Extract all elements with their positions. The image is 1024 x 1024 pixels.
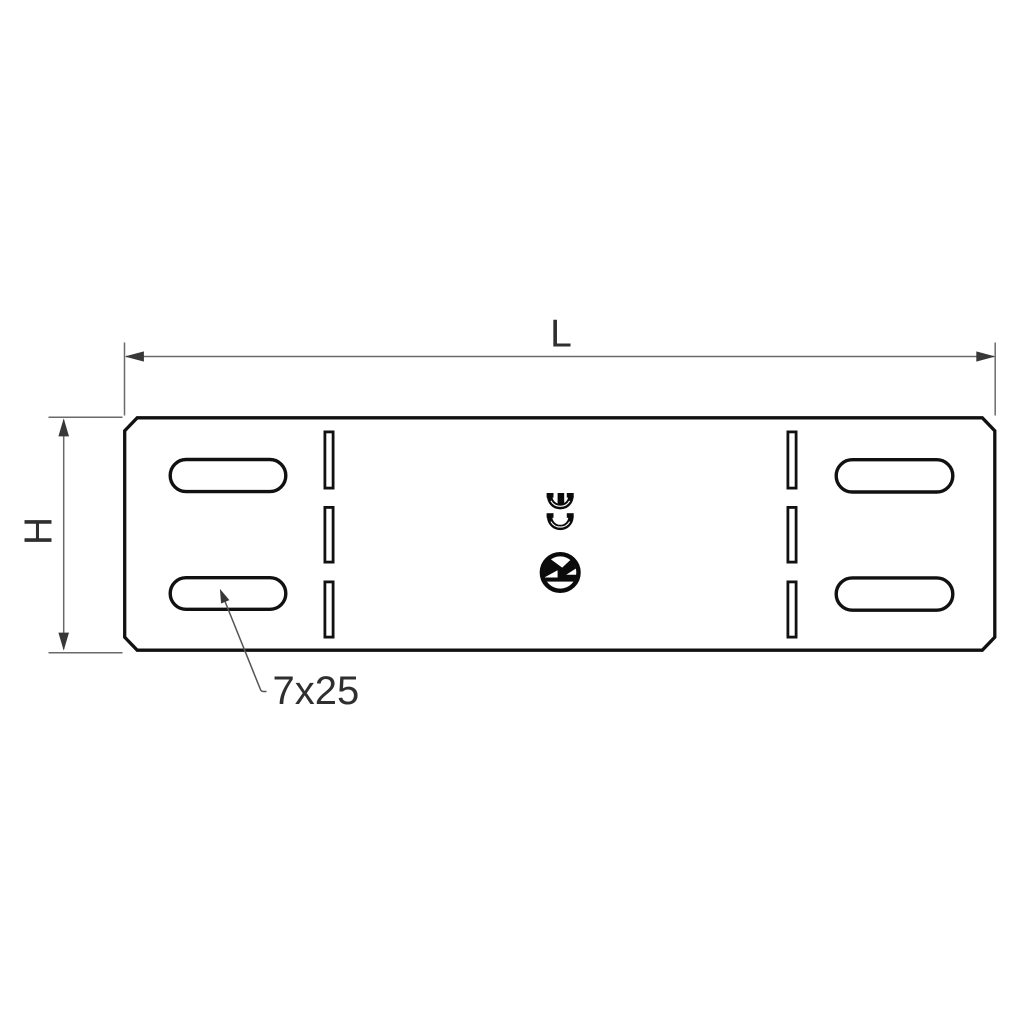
svg-text:L: L [550, 313, 572, 356]
svg-text:H: H [17, 517, 60, 545]
svg-text:7x25: 7x25 [273, 669, 360, 713]
